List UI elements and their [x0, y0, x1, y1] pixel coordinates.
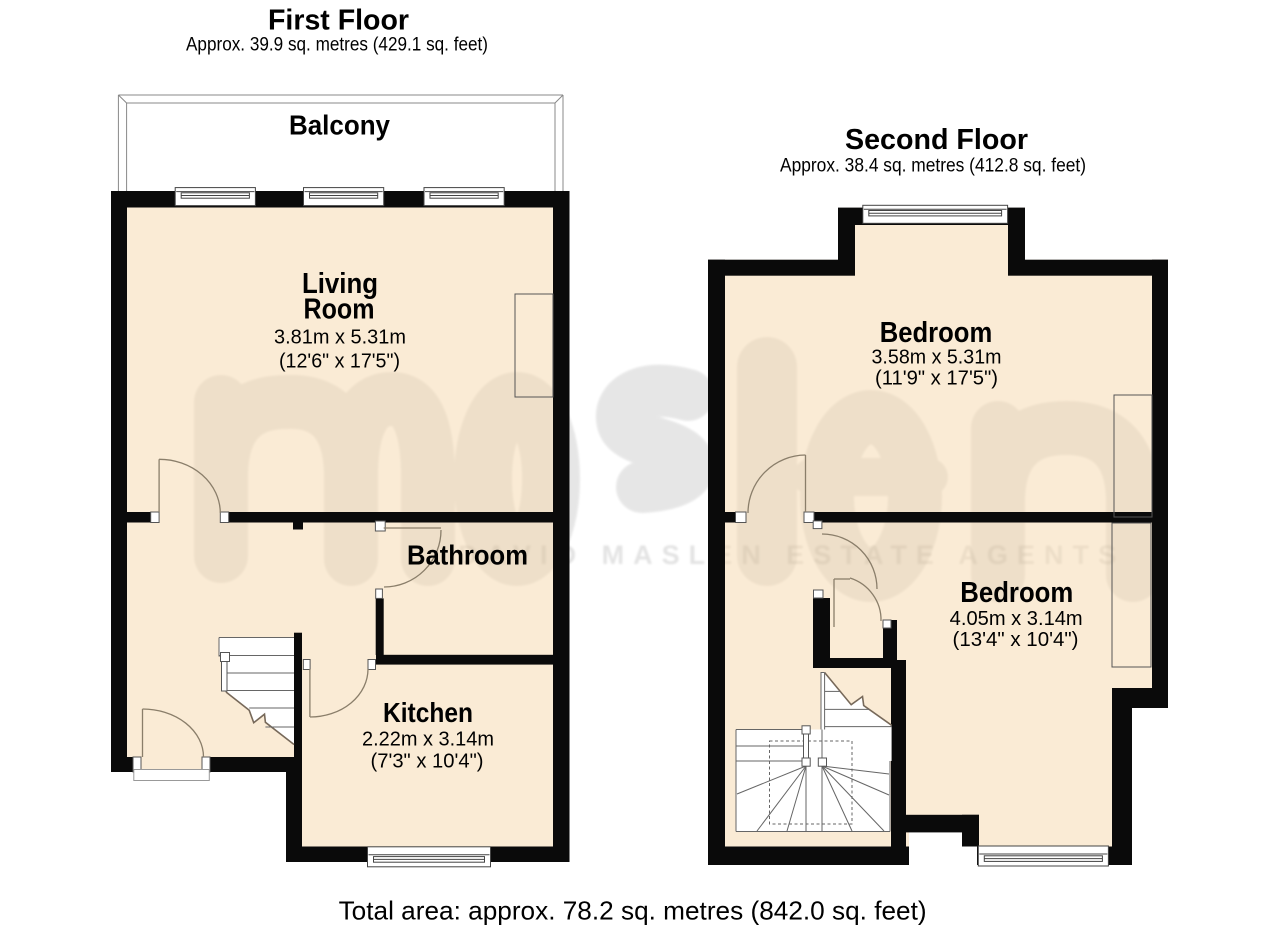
svg-text:Approx. 39.9 sq. metres (429.1: Approx. 39.9 sq. metres (429.1 sq. feet) [186, 35, 488, 56]
svg-text:3.81m x 5.31m: 3.81m x 5.31m [274, 327, 406, 349]
svg-text:(12'6" x 17'5"): (12'6" x 17'5") [279, 351, 400, 373]
svg-text:(13'4" x 10'4"): (13'4" x 10'4") [953, 629, 1079, 651]
svg-text:4.05m x 3.14m: 4.05m x 3.14m [950, 608, 1083, 630]
svg-text:Balcony: Balcony [289, 110, 391, 141]
svg-text:Bedroom: Bedroom [960, 577, 1073, 609]
svg-text:(11'9" x 17'5"): (11'9" x 17'5") [875, 368, 998, 390]
svg-text:(7'3" x 10'4"): (7'3" x 10'4") [371, 751, 484, 773]
svg-text:Approx. 38.4 sq. metres (412.8: Approx. 38.4 sq. metres (412.8 sq. feet) [780, 156, 1086, 177]
svg-text:2.22m x 3.14m: 2.22m x 3.14m [362, 729, 494, 751]
svg-text:Room: Room [304, 294, 375, 326]
svg-text:Total area: approx. 78.2 sq. m: Total area: approx. 78.2 sq. metres (842… [339, 896, 927, 926]
svg-text:Kitchen: Kitchen [383, 697, 473, 728]
svg-text:Bedroom: Bedroom [880, 317, 993, 349]
svg-text:First Floor: First Floor [268, 5, 409, 37]
svg-text:Bathroom: Bathroom [407, 540, 528, 571]
svg-text:3.58m x 5.31m: 3.58m x 5.31m [872, 347, 1002, 369]
svg-text:Second Floor: Second Floor [845, 124, 1028, 156]
